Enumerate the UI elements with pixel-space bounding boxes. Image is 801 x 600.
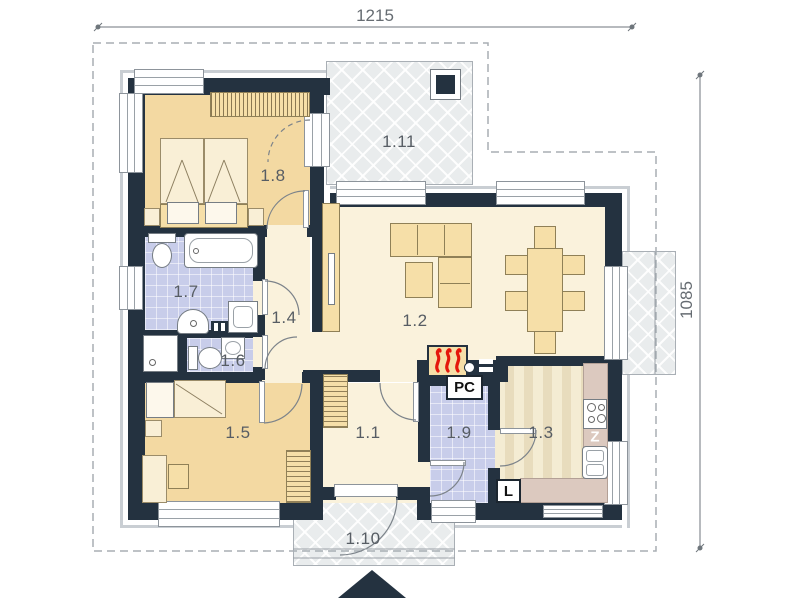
dining-chair [534,330,556,354]
wall [396,487,417,500]
kitchen-counter [520,478,608,503]
hall-passage-floor [310,332,324,372]
burner [588,416,595,423]
room-label-1-10: 1.10 [345,529,380,549]
floor-plan-canvas: PC L Z [0,0,801,600]
room-label-1-7: 1.7 [173,282,198,302]
desk-chair [168,464,189,489]
shower [143,335,178,372]
sofa-cushion-line [440,283,470,284]
side-terrace [622,251,676,375]
chimney-flue [436,75,455,94]
burner [598,404,605,411]
room-label-1-3: 1.3 [528,423,553,443]
bathtub [184,233,258,268]
window [496,181,585,205]
pillow [167,202,199,224]
kitchen-sink [582,446,608,479]
room-label-1-5: 1.5 [225,423,250,443]
washbasin [177,309,209,334]
door-leaf [259,381,265,423]
washbasin-drain [190,320,197,327]
burner [587,403,596,412]
window [543,505,603,518]
wall [417,487,430,520]
dining-chair [534,226,556,250]
window [431,500,476,523]
sink-basin [586,464,604,476]
wall [310,383,323,503]
door-leaf [430,460,466,466]
single-bed [174,380,226,418]
towel-radiator-icon [211,321,228,333]
double-bed-mattress [160,138,204,204]
sink-basin [586,450,604,462]
wardrobe [210,92,310,117]
pillow [146,382,174,418]
chimney [430,69,461,100]
toilet-tank [148,233,176,243]
radiator-segment [214,323,218,331]
desk [142,455,167,503]
doorway-floor [267,225,307,237]
wall [488,366,500,430]
dimension-height-label: 1085 [677,281,697,319]
boiler-label: PC [446,375,483,400]
doorway-floor [380,370,417,382]
doorway-floor [262,372,302,383]
door-leaf [413,382,419,422]
stove-knob-icon [464,362,475,373]
fireplace [427,345,468,377]
bathtub-drain [193,248,199,254]
room-label-1-6: 1.6 [220,351,245,371]
room-label-1-1: 1.1 [355,423,380,443]
entrance-arrow [338,570,406,598]
room-label-1-4: 1.4 [271,308,296,328]
entrance-door [334,484,398,497]
wall [418,382,430,462]
bedroom-terrace-door [304,113,330,167]
sofa-cushion-line [444,225,445,255]
dining-chair [505,291,529,311]
room-label-1-2: 1.2 [402,311,427,331]
hall-1-4-floor [265,237,310,372]
radiator-segment [221,323,225,331]
dining-chair [561,255,585,275]
terrace-door [604,266,628,360]
dining-chair [505,255,529,275]
window [336,181,426,205]
door-leaf [262,279,268,315]
fridge-label: L [496,479,521,503]
dining-chair [561,291,585,311]
wall [177,338,187,372]
burner [597,414,606,423]
stove [583,399,607,429]
sofa-cushion-line [417,225,418,255]
washing-machine [228,301,258,333]
dining-table [527,248,563,332]
window [119,266,143,310]
dimension-width-label: 1215 [356,6,394,26]
room-label-1-9: 1.9 [446,423,471,443]
window [134,69,204,94]
vent-bar-icon [479,367,493,372]
corner-sofa [390,223,472,257]
toilet-tank [188,346,198,370]
door-leaf [303,190,309,228]
toilet-bowl [152,243,172,268]
window [119,93,143,173]
toilet-bowl [198,347,222,369]
side-table [145,420,162,437]
washer-drum [233,306,253,328]
double-bed-mattress [204,138,248,204]
wardrobe [286,450,311,503]
shower-drain [149,359,156,366]
door-leaf [262,335,268,369]
nightstand [144,208,160,226]
room-label-1-8: 1.8 [260,166,285,186]
pillow [205,202,237,224]
vent-bar-icon [479,359,493,364]
coffee-table [405,262,433,298]
wardrobe [323,374,348,428]
dishwasher-label: Z [590,429,599,446]
room-label-1-11: 1.11 [382,132,416,152]
wall [310,95,324,115]
nightstand [248,208,264,226]
media-unit-niche [328,253,335,305]
window [158,501,280,527]
